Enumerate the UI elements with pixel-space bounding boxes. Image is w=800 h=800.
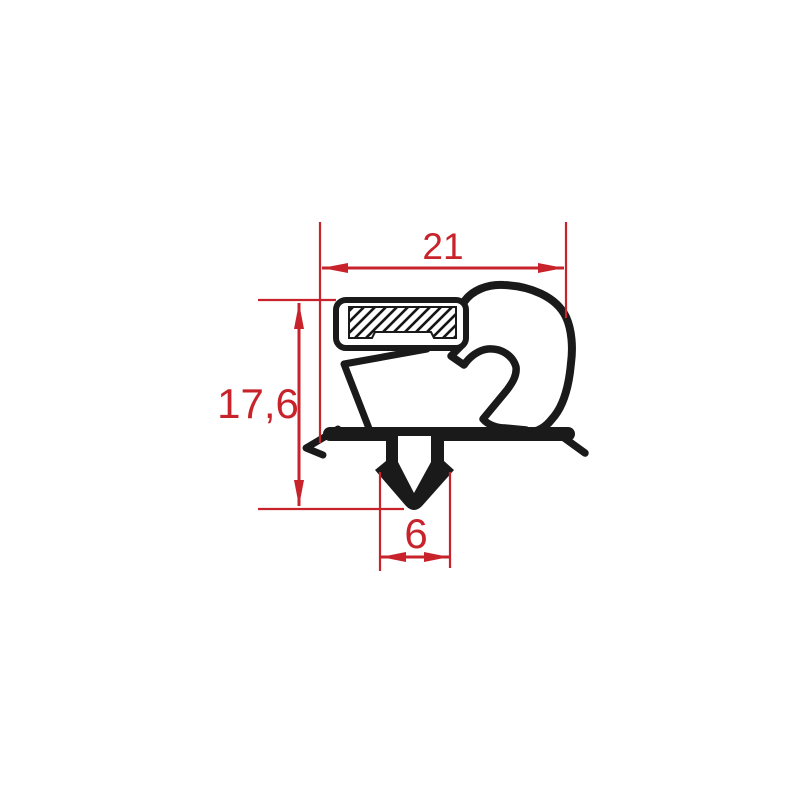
dimension-height-label: 17,6 xyxy=(217,380,299,427)
arrowhead-right-icon xyxy=(424,552,449,562)
gasket-profile-drawing: 21 17,6 6 xyxy=(0,0,800,800)
left-fin xyxy=(306,429,338,455)
arrowhead-left-icon xyxy=(381,552,406,562)
drawing-canvas: 21 17,6 6 xyxy=(0,0,800,800)
bulb-outline xyxy=(464,285,572,432)
gasket-profile xyxy=(306,285,585,510)
arrowhead-right-icon xyxy=(538,263,564,273)
dimension-width-label: 21 xyxy=(422,226,463,267)
arrowhead-left-icon xyxy=(322,263,348,273)
inner-fold xyxy=(451,347,526,430)
crown-fold xyxy=(344,349,427,431)
dimensions: 21 17,6 6 xyxy=(217,222,566,571)
arrowhead-up-icon xyxy=(294,303,304,329)
dimension-notch-label: 6 xyxy=(404,510,427,557)
arrowhead-down-icon xyxy=(294,480,304,506)
